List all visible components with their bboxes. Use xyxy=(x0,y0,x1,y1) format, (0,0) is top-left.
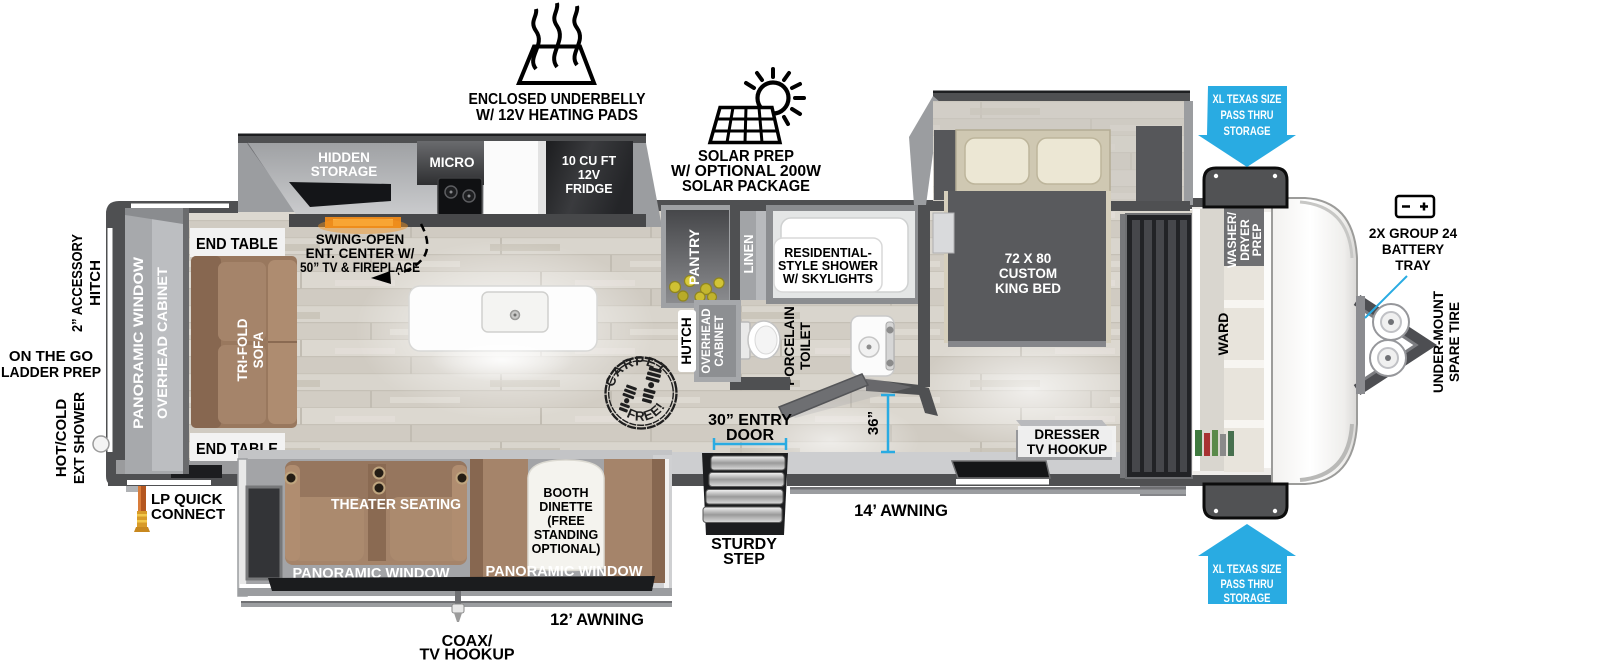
svg-text:STEP: STEP xyxy=(723,551,765,568)
svg-text:FRIDGE: FRIDGE xyxy=(565,182,612,196)
svg-text:HIDDEN: HIDDEN xyxy=(318,150,370,165)
svg-text:ENT. CENTER W/: ENT. CENTER W/ xyxy=(306,246,415,261)
svg-text:HOT/COLD: HOT/COLD xyxy=(53,399,70,477)
svg-text:STORAGE: STORAGE xyxy=(1224,126,1271,138)
svg-text:UNDER-MOUNT: UNDER-MOUNT xyxy=(1431,290,1446,393)
svg-text:OVERHEAD CABINET: OVERHEAD CABINET xyxy=(155,266,170,419)
svg-text:PASS THRU: PASS THRU xyxy=(1221,579,1274,591)
svg-text:BATTERY: BATTERY xyxy=(1382,242,1444,257)
svg-text:HUTCH: HUTCH xyxy=(679,317,694,364)
svg-text:PORCELAIN: PORCELAIN xyxy=(782,306,797,386)
svg-text:OPTIONAL): OPTIONAL) xyxy=(532,542,601,556)
svg-text:BOOTH: BOOTH xyxy=(543,486,588,500)
svg-text:TOILET: TOILET xyxy=(798,321,813,370)
svg-text:CABINET: CABINET xyxy=(714,315,726,366)
svg-text:PREP: PREP xyxy=(1250,224,1264,257)
svg-text:TRI-FOLD: TRI-FOLD xyxy=(235,318,250,381)
svg-text:LINEN: LINEN xyxy=(741,235,756,274)
svg-text:TV HOOKUP: TV HOOKUP xyxy=(1027,442,1107,457)
svg-text:PASS THRU: PASS THRU xyxy=(1221,110,1274,122)
svg-text:W/ SKYLIGHTS: W/ SKYLIGHTS xyxy=(783,272,873,286)
svg-text:SWING-OPEN: SWING-OPEN xyxy=(316,232,405,247)
svg-text:CONNECT: CONNECT xyxy=(151,506,225,523)
svg-text:SPARE TIRE: SPARE TIRE xyxy=(1447,302,1462,382)
svg-text:STANDING: STANDING xyxy=(534,528,598,542)
svg-text:WARD: WARD xyxy=(1215,313,1231,356)
svg-text:END TABLE: END TABLE xyxy=(196,236,278,253)
svg-text:SOFA: SOFA xyxy=(251,331,266,368)
svg-text:MICRO: MICRO xyxy=(430,155,475,170)
svg-text:HITCH: HITCH xyxy=(87,260,104,306)
svg-text:STORAGE: STORAGE xyxy=(1224,593,1271,605)
svg-text:CUSTOM: CUSTOM xyxy=(999,266,1057,281)
svg-text:STORAGE: STORAGE xyxy=(311,164,378,179)
svg-text:DRESSER: DRESSER xyxy=(1034,427,1100,442)
svg-text:DOOR: DOOR xyxy=(726,427,774,444)
svg-text:KING BED: KING BED xyxy=(995,281,1061,296)
svg-text:TRAY: TRAY xyxy=(1395,258,1431,273)
svg-text:2” ACCESSORY: 2” ACCESSORY xyxy=(69,234,86,332)
svg-text:(FREE: (FREE xyxy=(547,514,585,528)
svg-text:2X GROUP 24: 2X GROUP 24 xyxy=(1369,226,1458,241)
svg-text:12V: 12V xyxy=(578,168,601,182)
svg-text:XL TEXAS SIZE: XL TEXAS SIZE xyxy=(1213,94,1282,106)
svg-text:10 CU FT: 10 CU FT xyxy=(562,154,617,168)
svg-text:50” TV & FIREPLACE: 50” TV & FIREPLACE xyxy=(300,260,420,275)
svg-text:WASHER/: WASHER/ xyxy=(1225,211,1239,268)
svg-text:ENCLOSED UNDERBELLY: ENCLOSED UNDERBELLY xyxy=(469,91,647,108)
svg-text:OVERHEAD: OVERHEAD xyxy=(701,308,713,373)
svg-text:14’ AWNING: 14’ AWNING xyxy=(854,502,948,520)
svg-text:TV HOOKUP: TV HOOKUP xyxy=(419,647,514,660)
svg-text:PANORAMIC WINDOW: PANORAMIC WINDOW xyxy=(131,257,146,429)
svg-text:12’ AWNING: 12’ AWNING xyxy=(550,611,644,629)
svg-text:PANTRY: PANTRY xyxy=(686,228,702,285)
svg-text:THEATER SEATING: THEATER SEATING xyxy=(331,497,461,513)
svg-text:DINETTE: DINETTE xyxy=(539,500,592,514)
svg-text:ON THE GO: ON THE GO xyxy=(9,348,94,365)
svg-text:XL TEXAS SIZE: XL TEXAS SIZE xyxy=(1213,564,1282,576)
svg-text:EXT SHOWER: EXT SHOWER xyxy=(71,392,88,484)
svg-text:72 X 80: 72 X 80 xyxy=(1005,251,1052,266)
svg-text:W/ 12V HEATING PADS: W/ 12V HEATING PADS xyxy=(476,107,638,124)
svg-text:36”: 36” xyxy=(865,411,882,435)
svg-text:RESIDENTIAL-: RESIDENTIAL- xyxy=(784,246,872,260)
svg-text:LADDER PREP: LADDER PREP xyxy=(1,364,101,381)
svg-text:SOLAR PACKAGE: SOLAR PACKAGE xyxy=(682,178,810,195)
svg-text:STYLE SHOWER: STYLE SHOWER xyxy=(778,259,878,273)
